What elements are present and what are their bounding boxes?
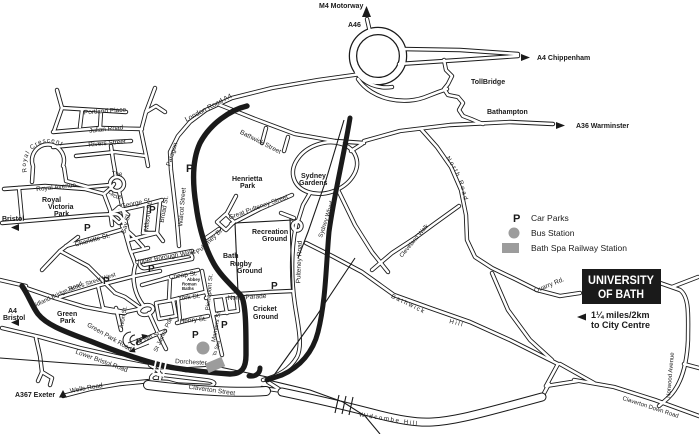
svg-text:The: The bbox=[112, 172, 123, 178]
svg-text:Park: Park bbox=[60, 318, 75, 325]
svg-text:P: P bbox=[148, 264, 155, 275]
svg-text:Car Parks: Car Parks bbox=[531, 213, 569, 223]
svg-text:Ground: Ground bbox=[262, 236, 287, 243]
svg-text:Recreation: Recreation bbox=[252, 229, 288, 236]
svg-text:P: P bbox=[149, 205, 156, 216]
svg-text:Bristol: Bristol bbox=[2, 216, 24, 223]
svg-text:Baths: Baths bbox=[182, 286, 195, 291]
svg-text:A367 Exeter: A367 Exeter bbox=[15, 392, 55, 399]
svg-text:Bristol: Bristol bbox=[3, 315, 25, 322]
svg-text:A4: A4 bbox=[8, 308, 17, 315]
svg-text:Henrietta: Henrietta bbox=[232, 176, 262, 183]
svg-text:P: P bbox=[84, 223, 91, 234]
svg-text:P: P bbox=[221, 320, 228, 331]
svg-text:UNIVERSITY: UNIVERSITY bbox=[588, 275, 654, 287]
svg-text:Cricket: Cricket bbox=[253, 306, 277, 313]
svg-text:A46: A46 bbox=[348, 22, 361, 29]
svg-text:Bath: Bath bbox=[223, 253, 239, 260]
svg-text:P: P bbox=[271, 281, 278, 292]
svg-text:P: P bbox=[513, 213, 520, 225]
svg-text:Park: Park bbox=[240, 183, 255, 190]
svg-text:to City Centre: to City Centre bbox=[591, 320, 650, 330]
svg-text:Sydney: Sydney bbox=[301, 173, 326, 180]
svg-text:Victoria: Victoria bbox=[48, 204, 74, 211]
svg-text:Bathampton: Bathampton bbox=[487, 109, 528, 116]
svg-text:Rugby: Rugby bbox=[230, 261, 252, 268]
svg-text:P: P bbox=[136, 337, 142, 347]
svg-text:Park: Park bbox=[54, 211, 69, 218]
svg-text:Bath Spa Railway Station: Bath Spa Railway Station bbox=[531, 243, 627, 253]
svg-text:Bus Station: Bus Station bbox=[531, 228, 575, 238]
svg-text:1¼ miles/2km: 1¼ miles/2km bbox=[591, 310, 650, 320]
svg-text:Green: Green bbox=[57, 311, 77, 318]
svg-text:OF BATH: OF BATH bbox=[598, 289, 644, 301]
svg-text:A4 Chippenham: A4 Chippenham bbox=[537, 55, 590, 62]
svg-text:Ground: Ground bbox=[237, 268, 262, 275]
svg-text:P: P bbox=[192, 330, 199, 341]
svg-text:Gardens: Gardens bbox=[299, 180, 328, 187]
svg-text:TollBridge: TollBridge bbox=[471, 79, 505, 86]
svg-text:P: P bbox=[186, 163, 193, 175]
svg-text:Ground: Ground bbox=[253, 314, 278, 321]
svg-text:A36 Warminster: A36 Warminster bbox=[576, 123, 629, 130]
svg-text:P: P bbox=[103, 276, 110, 287]
svg-text:M4 Motorway: M4 Motorway bbox=[319, 3, 363, 10]
svg-text:Royal: Royal bbox=[42, 197, 61, 204]
